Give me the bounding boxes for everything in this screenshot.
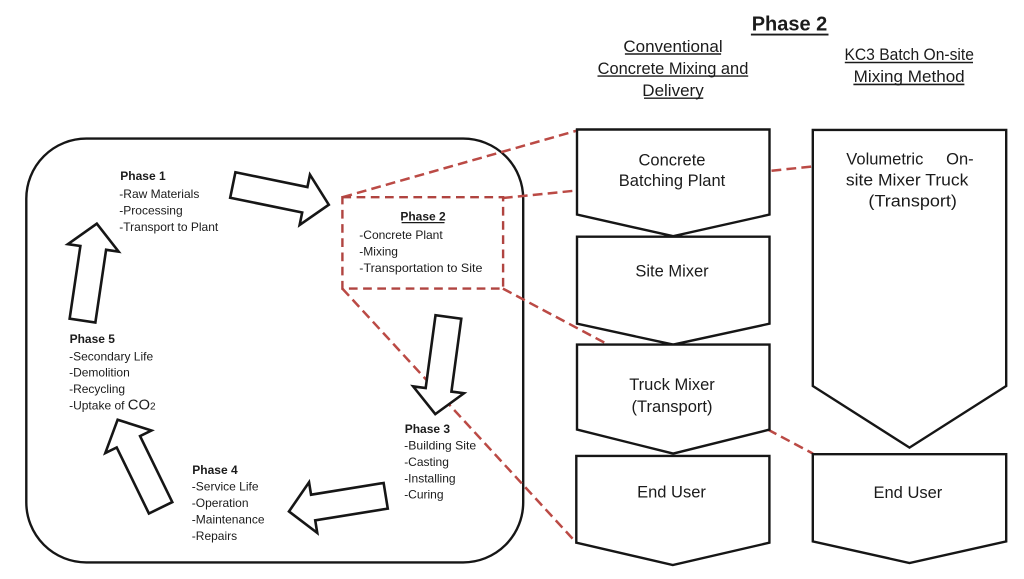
svg-text:-Maintenance: -Maintenance (192, 513, 265, 527)
svg-text:-Building Site: -Building Site (404, 438, 476, 452)
svg-text:-Demolition: -Demolition (69, 366, 130, 380)
svg-text:Phase 4: Phase 4 (192, 463, 238, 477)
svg-text:-Casting: -Casting (404, 455, 449, 469)
svg-text:Concrete: Concrete (639, 151, 706, 169)
svg-text:Phase 2: Phase 2 (752, 13, 828, 35)
svg-text:Phase 1: Phase 1 (120, 169, 166, 183)
svg-text:-Curing: -Curing (404, 487, 443, 501)
svg-text:-Processing: -Processing (119, 203, 182, 217)
svg-text:-Raw Materials: -Raw Materials (119, 187, 199, 201)
svg-text:Concrete Mixing and: Concrete Mixing and (598, 59, 749, 78)
svg-text:Delivery: Delivery (642, 81, 704, 100)
svg-text:-Uptake of CO2: -Uptake of CO2 (69, 398, 156, 414)
svg-text:-Secondary Life: -Secondary Life (69, 349, 153, 363)
svg-text:-Repairs: -Repairs (192, 529, 237, 543)
svg-text:Phase 5: Phase 5 (70, 332, 116, 346)
svg-text:-Service Life: -Service Life (192, 480, 259, 494)
svg-text:Phase 2: Phase 2 (400, 210, 446, 224)
svg-text:Batching Plant: Batching Plant (619, 172, 726, 190)
svg-text:End User: End User (874, 484, 943, 502)
svg-text:KC3 Batch On-site: KC3 Batch On-site (844, 45, 974, 64)
svg-text:-Transport to Plant: -Transport to Plant (119, 220, 219, 234)
svg-text:-Installing: -Installing (404, 471, 455, 485)
svg-text:Volumetric: Volumetric (846, 150, 923, 168)
svg-text:(Transport): (Transport) (632, 398, 713, 416)
svg-text:-Transportation to Site: -Transportation to Site (359, 261, 482, 275)
svg-text:-Recycling: -Recycling (69, 382, 125, 396)
svg-text:(Transport): (Transport) (868, 193, 957, 211)
svg-text:-Mixing: -Mixing (359, 245, 398, 259)
svg-text:-Operation: -Operation (192, 496, 249, 510)
svg-text:site Mixer Truck: site Mixer Truck (846, 172, 969, 190)
svg-text:Mixing Method: Mixing Method (854, 67, 965, 86)
svg-text:Truck Mixer: Truck Mixer (629, 376, 715, 394)
svg-text:On-: On- (946, 150, 974, 168)
svg-text:End User: End User (637, 484, 706, 502)
svg-text:Phase 3: Phase 3 (405, 422, 451, 436)
svg-text:Site Mixer: Site Mixer (635, 263, 709, 281)
svg-text:-Concrete Plant: -Concrete Plant (359, 228, 443, 242)
svg-text:Conventional: Conventional (623, 37, 722, 56)
